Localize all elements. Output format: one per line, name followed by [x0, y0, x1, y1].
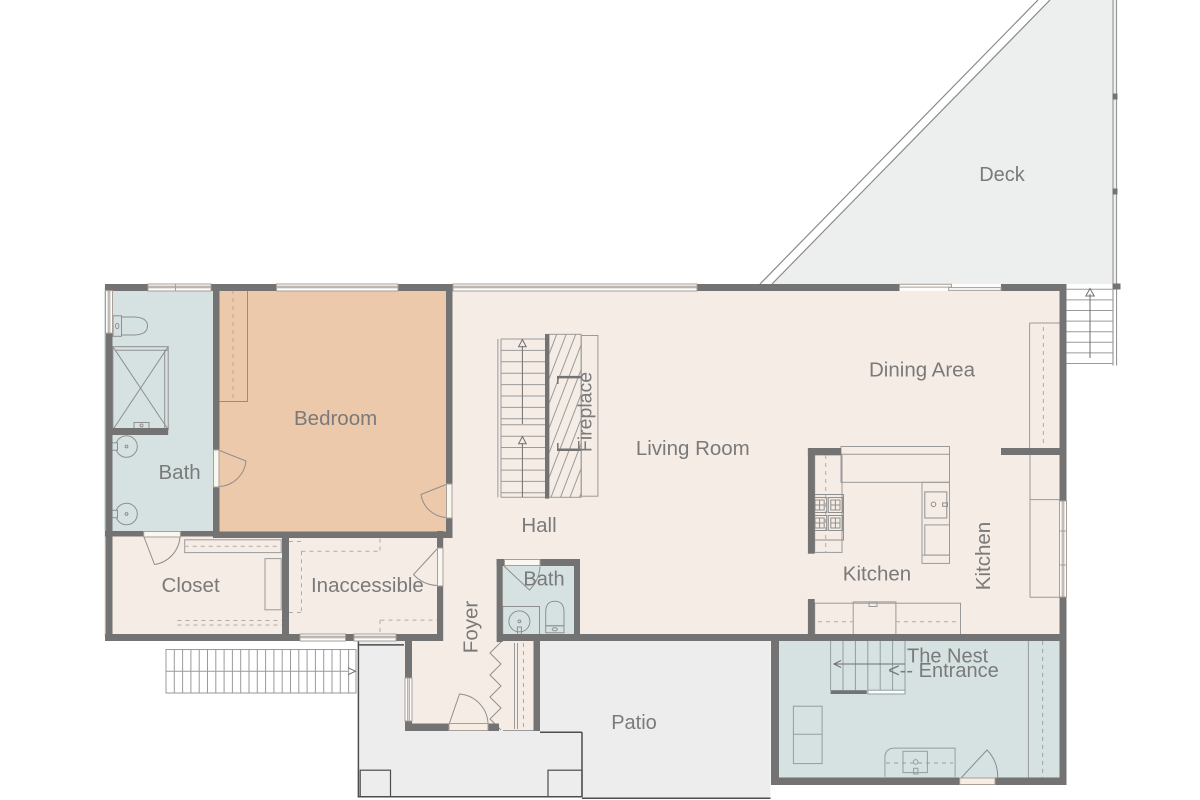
svg-text:Hall: Hall — [521, 514, 556, 537]
svg-text:Foyer: Foyer — [460, 601, 483, 654]
svg-text:Fireplace: Fireplace — [575, 372, 597, 452]
svg-text:Bedroom: Bedroom — [294, 407, 377, 430]
svg-text:Dining Area: Dining Area — [869, 359, 976, 382]
svg-text:Kitchen: Kitchen — [972, 522, 995, 590]
svg-text:Inaccessible: Inaccessible — [311, 574, 424, 597]
svg-text:Closet: Closet — [162, 574, 220, 597]
svg-text:Living Room: Living Room — [636, 437, 750, 460]
svg-text:Bath: Bath — [523, 569, 564, 591]
svg-text:Bath: Bath — [159, 461, 201, 484]
svg-text:Kitchen: Kitchen — [843, 563, 911, 586]
svg-text:Patio: Patio — [611, 712, 657, 734]
svg-text:Deck: Deck — [979, 164, 1026, 186]
svg-text:<-- Entrance: <-- Entrance — [888, 660, 999, 682]
